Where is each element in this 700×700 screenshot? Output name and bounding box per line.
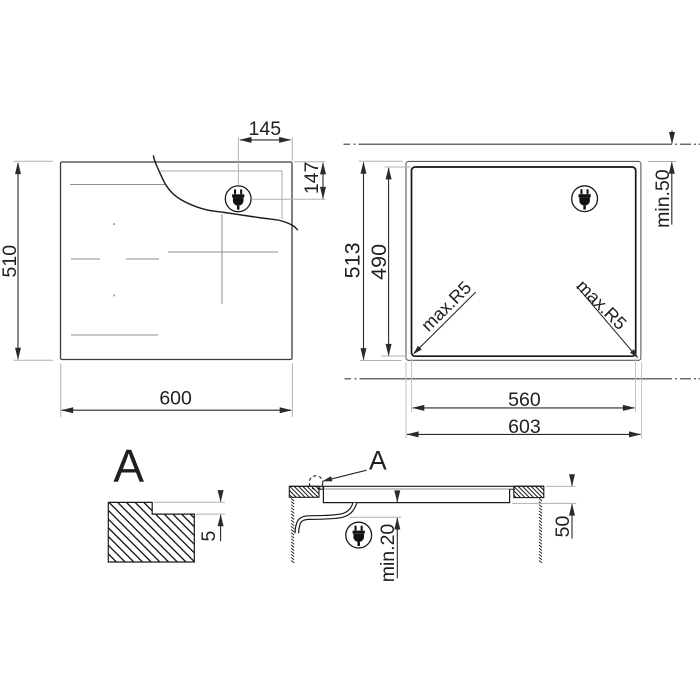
svg-text:603: 603	[508, 416, 541, 438]
svg-text:min.50: min.50	[652, 169, 674, 228]
svg-text:A: A	[369, 445, 387, 475]
svg-text:600: 600	[159, 387, 192, 409]
svg-text:5: 5	[198, 530, 220, 541]
svg-text:510: 510	[0, 245, 21, 278]
svg-text:min.20: min.20	[377, 524, 399, 583]
svg-text:A: A	[113, 440, 144, 492]
svg-text:50: 50	[552, 516, 574, 538]
svg-text:490: 490	[367, 244, 391, 280]
svg-text:513: 513	[341, 242, 365, 278]
svg-text:147: 147	[301, 162, 323, 195]
svg-text:560: 560	[508, 389, 541, 411]
svg-text:145: 145	[249, 118, 282, 140]
